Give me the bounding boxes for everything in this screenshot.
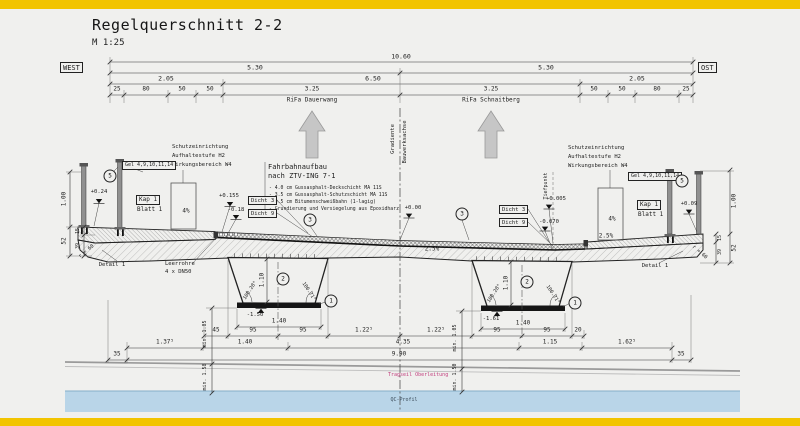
dim-25-l: 25 [113, 87, 120, 94]
dim-rail-height-left: 1.00 [62, 192, 69, 206]
dim-cap-edge-right: 15 [718, 235, 724, 241]
pavement-layer-1: - 4.0 cm Gussasphalt-Deckschicht MA 11S [269, 186, 382, 192]
tag-dicht3-right: Dicht 3 [499, 205, 528, 214]
dim-25-r: 25 [682, 87, 689, 94]
clearance-left-upper: min. 1.05 [203, 320, 209, 347]
pavement-layer-2: - 3.5 cm Gussasphalt-Schutzschicht MA 11… [269, 193, 387, 199]
tag-dicht3-left: Dicht 3 [248, 196, 277, 205]
slope-cap-right: 4% [608, 217, 615, 224]
protection-left-2: Aufhaltestufe H2 [172, 153, 225, 159]
tag-gel-right: Gel 4,9,10,11,14 [628, 172, 682, 181]
dim-rowB-435: 4.35 [396, 340, 410, 347]
curb-left [214, 232, 219, 239]
protection-left-1: Schutzeinrichtung [172, 144, 228, 150]
dim-rowA-1225a: 1.22⁵ [355, 328, 373, 335]
protection-left-3: Wirkungsbereich W4 [172, 162, 232, 168]
tag-gel-left: Gel 4,9,10,11,14 [122, 161, 176, 170]
dim-rowB-115: 1.15 [543, 340, 557, 347]
tag-blatt-right: Blatt 1 [638, 212, 663, 219]
tag-detail-right: Detail 1 [642, 263, 669, 269]
dim-rowC-990: 9.90 [392, 352, 406, 359]
girder-height-left: 1.10 [260, 273, 267, 287]
dim-rail-height-right: 1.00 [732, 194, 739, 208]
lane-label-right: RiFa Schnaitberg [462, 98, 520, 105]
level-box-right: -1.61 [483, 316, 500, 322]
level-right-edge: +0.09 [681, 201, 698, 207]
dim-total-width: 10.60 [391, 53, 411, 60]
dim-left-half: 5.30 [247, 64, 263, 71]
dim-rowC-35r: 35 [677, 352, 684, 359]
dim-carriageway: 6.50 [365, 75, 381, 82]
dim-lower-left: 39 [76, 243, 82, 249]
page-title: Regelquerschnitt 2-2 [92, 16, 283, 34]
dim-rowA-95a: 95 [249, 328, 256, 335]
level-tief-top: +0.005 [546, 196, 566, 202]
dim-50b-l: 50 [206, 87, 213, 94]
dim-rowA-95b: 95 [299, 328, 306, 335]
tag-detail-left: Detail 1 [99, 262, 126, 268]
protection-right-1: Schutzeinrichtung [568, 145, 624, 151]
dim-rowA-1225b: 1.22⁵ [427, 328, 445, 335]
dim-rowA-45: 45 [212, 328, 219, 335]
callout-2-left: 2 [277, 273, 290, 286]
dim-rowA-95d: 95 [543, 328, 550, 335]
callout-5-left: 5 [104, 170, 117, 183]
clearance-right-lower: min. 1.50 [453, 363, 459, 390]
callout-1-right: 1 [569, 297, 582, 310]
slope-deck-right: 2.5% [599, 234, 613, 241]
pavement-layer-4: - Grundierung und Versiegelung aus Epoxi… [269, 207, 399, 213]
dim-lane-l: 3.25 [305, 87, 319, 94]
conduit-label-1: Leerrohre [165, 261, 195, 267]
level-center: +0.00 [405, 205, 422, 211]
slope-cap-left: 4% [182, 209, 189, 216]
tag-dicht9-left: Dicht 9 [248, 209, 277, 218]
drawing-scale: M 1:25 [92, 38, 125, 48]
protection-right-3: Wirkungsbereich W4 [568, 163, 628, 169]
guardrail-left [171, 183, 196, 229]
drawing-canvas: Regelquerschnitt 2-2 M 1:25 WEST OST 10.… [0, 0, 800, 426]
dim-right-half: 5.30 [538, 64, 554, 71]
dim-lane-r: 3.25 [484, 87, 498, 94]
tag-kap-left: Kap 1 [136, 195, 160, 205]
lane-label-left: RiFa Dauerwang [287, 98, 338, 105]
callout-2-right: 2 [521, 276, 534, 289]
water-profile-label: QC-Profil [390, 398, 417, 404]
cross-section-drawing [0, 0, 800, 426]
dim-beam-left: 52 [62, 237, 69, 244]
dim-left-cap: 2.05 [158, 75, 174, 82]
dim-beam-right: 52 [732, 244, 739, 251]
level-box-left: -1.50 [247, 312, 264, 318]
dim-50b-r: 50 [618, 87, 625, 94]
dim-50a-l: 50 [178, 87, 185, 94]
catenary-wire-label: Tragseil Oberleitung [388, 373, 448, 379]
tag-kap-right: Kap 1 [637, 200, 661, 210]
dim-cap-edge-left: 15 [76, 228, 82, 234]
slope-deck-center: 2.5% [425, 247, 439, 254]
clearance-right-upper: min. 1.05 [453, 324, 459, 351]
level-tief-bottom: -0.070 [539, 219, 559, 225]
clearance-left-lower: min. 1.58 [203, 363, 209, 390]
axis-label-gradiente: Gradiente [390, 124, 396, 154]
pavement-title-1: Fahrbahnaufbau [268, 163, 327, 171]
dim-80-l: 80 [142, 87, 149, 94]
callout-1-left: 1 [325, 295, 338, 308]
dim-rowA-20: 20 [574, 328, 581, 335]
axis-label-bauwerksachse: Bauwerksachse [402, 120, 408, 163]
callout-3-left: 3 [304, 214, 317, 227]
dim-50a-r: 50 [590, 87, 597, 94]
dim-rowC-35l: 35 [113, 352, 120, 359]
level-left-road: +0.155 [219, 193, 239, 199]
dim-rowB-1625: 1.62⁵ [618, 340, 636, 347]
dim-rowB-1375: 1.37⁵ [156, 340, 174, 347]
compass-west: WEST [60, 62, 83, 73]
pavement-title-2: nach ZTV-ING 7-1 [268, 172, 335, 180]
callout-5-right: 5 [676, 175, 689, 188]
tag-blatt-left: Blatt 1 [137, 207, 162, 214]
compass-ost: OST [698, 62, 717, 73]
dim-box-width-left: 1.40 [272, 319, 286, 326]
pavement-layer-3: - 0.5 cm Bitumenschweißbahn (1-lagig) [269, 200, 376, 206]
level-left-edge: +0.24 [91, 189, 108, 195]
dim-80-r: 80 [653, 87, 660, 94]
curb-right [584, 240, 589, 247]
girder-height-right: 1.10 [504, 276, 511, 290]
dim-box-width-right: 1.40 [516, 321, 530, 328]
dim-rowA-95c: 95 [493, 328, 500, 335]
level-left-seal: -0.18 [228, 207, 245, 213]
callout-3-right: 3 [456, 208, 469, 221]
dim-right-cap: 2.05 [629, 75, 645, 82]
dim-lower-right: 39 [718, 249, 724, 255]
dim-rowB-140: 1.40 [238, 340, 252, 347]
conduit-label-2: 4 x DN50 [165, 269, 192, 275]
tag-dicht9-right: Dicht 9 [499, 218, 528, 227]
protection-right-2: Aufhaltestufe H2 [568, 154, 621, 160]
